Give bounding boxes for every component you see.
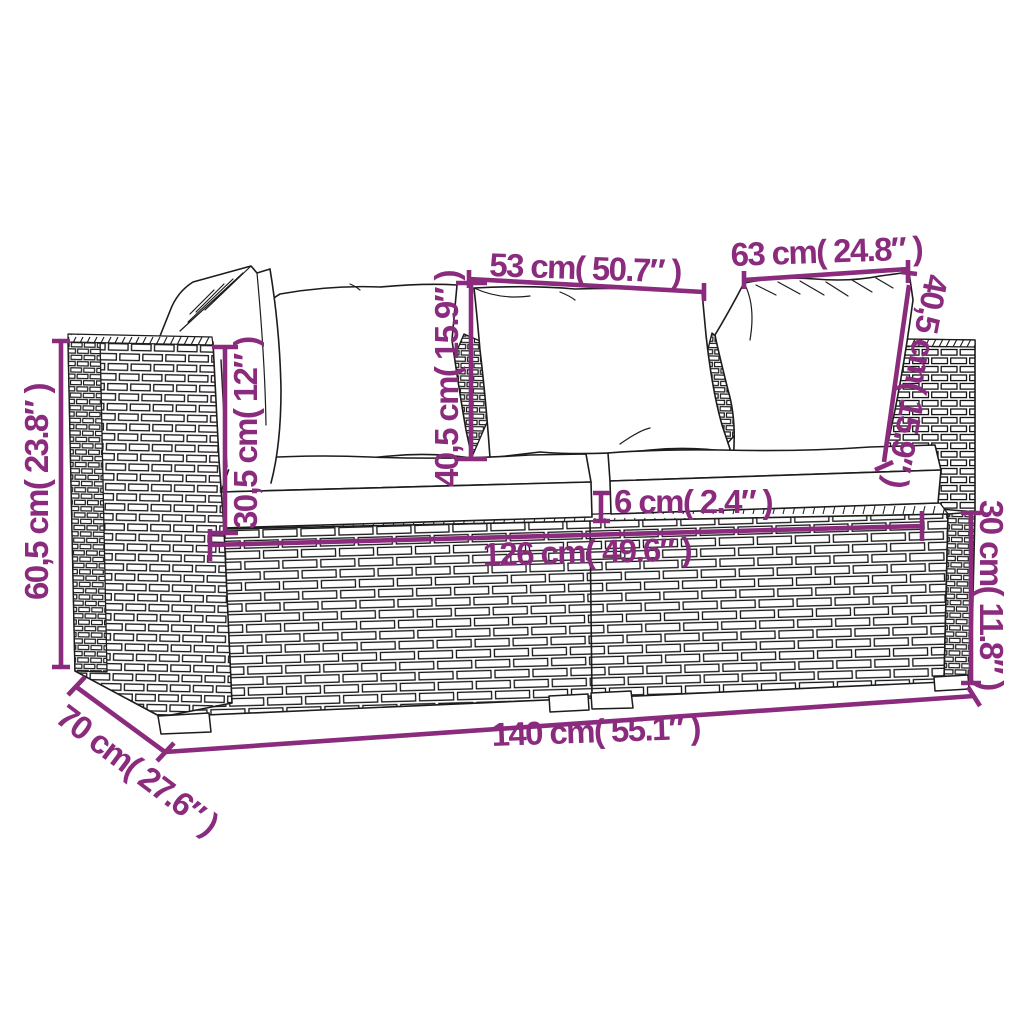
svg-text:60,5 cm( 23.8″ ): 60,5 cm( 23.8″ )	[18, 384, 55, 600]
svg-text:53 cm( 50.7″ ): 53 cm( 50.7″ )	[489, 246, 682, 290]
svg-text:63 cm( 24.8″ ): 63 cm( 24.8″ )	[730, 229, 923, 273]
svg-text:6 cm( 2.4″ ): 6 cm( 2.4″ )	[614, 483, 773, 520]
svg-text:30 cm( 11.8″ ): 30 cm( 11.8″ )	[973, 500, 1010, 690]
svg-text:126 cm( 49.6″ ): 126 cm( 49.6″ )	[482, 531, 692, 573]
svg-text:30,5 cm( 12″ ): 30,5 cm( 12″ )	[227, 337, 264, 529]
svg-text:40,5 cm( 15.9″ ): 40,5 cm( 15.9″ )	[428, 271, 465, 487]
svg-text:140 cm( 55.1″ ): 140 cm( 55.1″ )	[491, 709, 701, 753]
